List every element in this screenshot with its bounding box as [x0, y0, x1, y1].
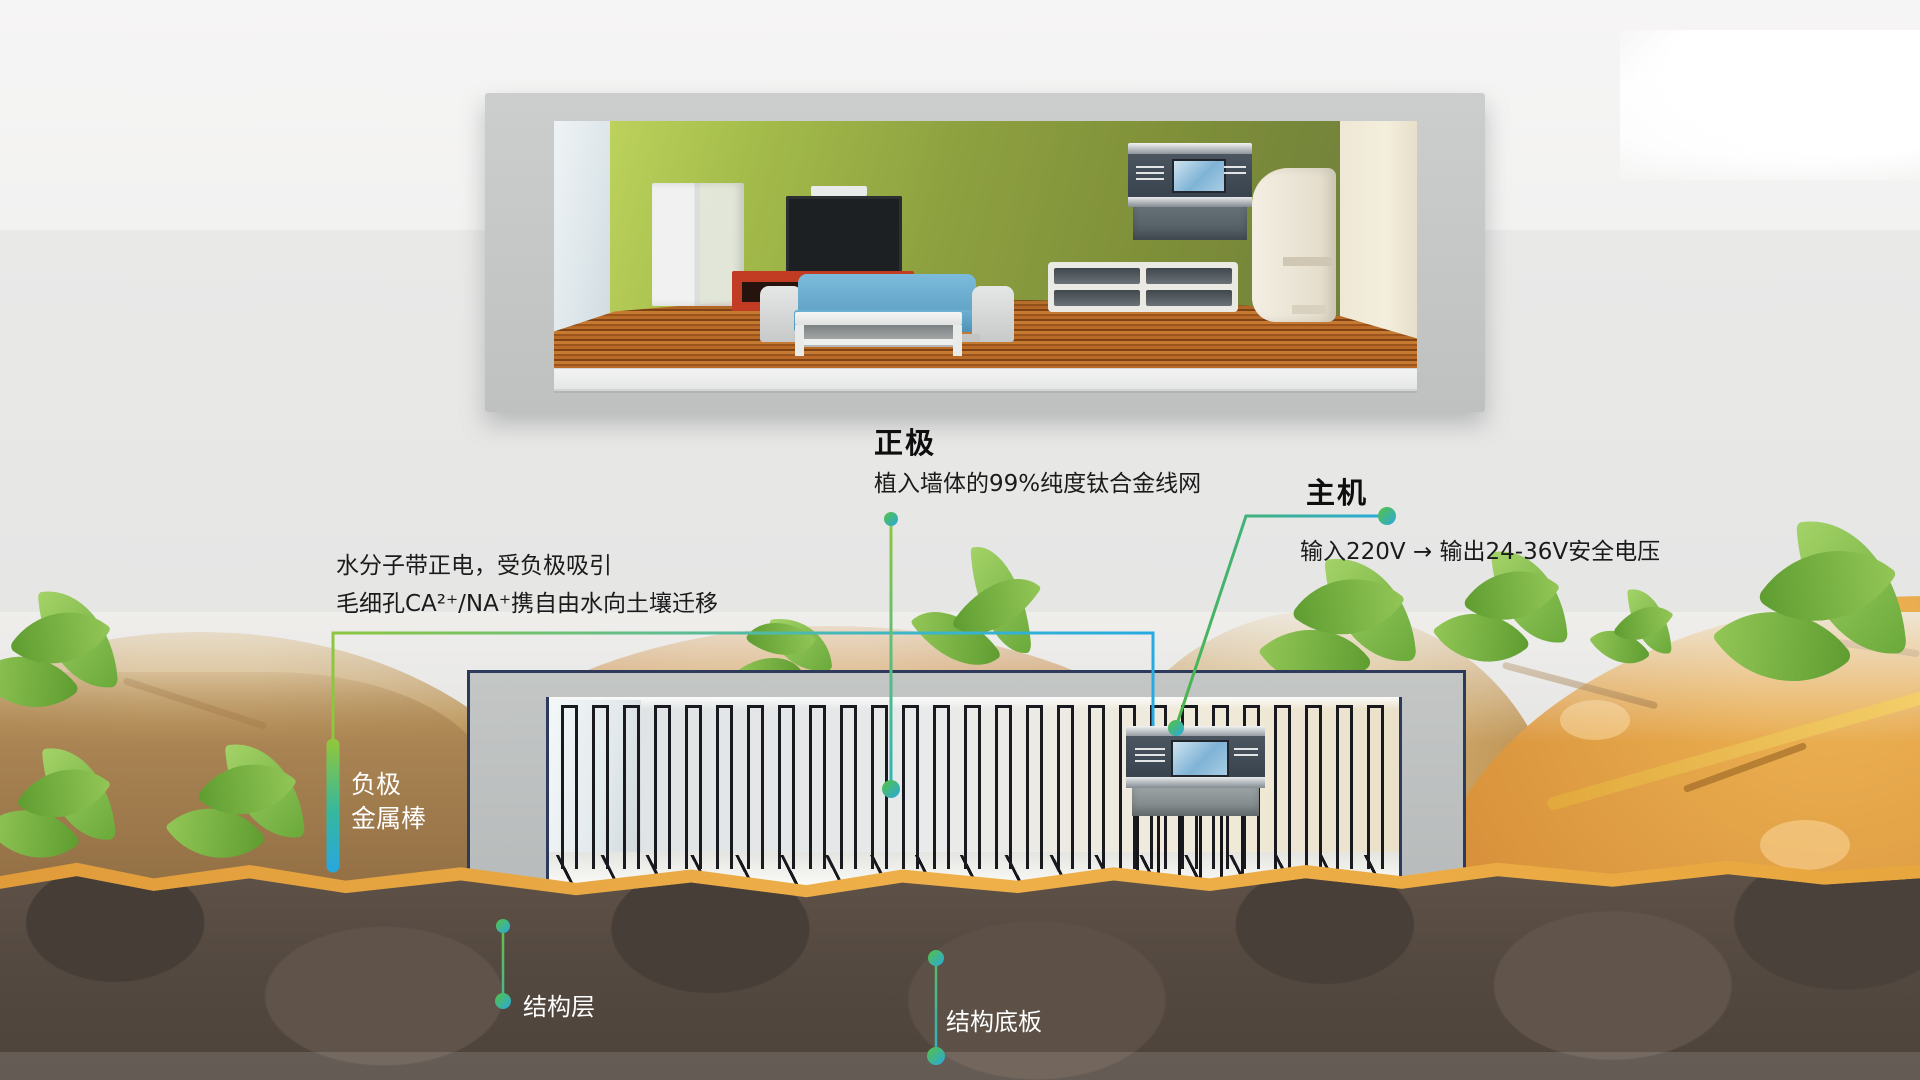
structure-base-dot-bottom [927, 1047, 945, 1065]
positive-electrode-desc: 植入墙体的99%纯度钛合金线网 [874, 464, 1201, 498]
migration-note-line2: 毛细孔CA²⁺/NA⁺携自由水向土壤迁移 [336, 584, 718, 618]
host-title: 主机 [1306, 470, 1368, 512]
positive-electrode-title: 正极 [874, 420, 936, 462]
structure-layer-label: 结构层 [523, 987, 595, 1022]
negative-electrode-line2: 金属棒 [351, 802, 426, 836]
structure-base-label: 结构底板 [946, 1002, 1042, 1037]
host-device-dot [1168, 720, 1184, 736]
host-desc: 输入220V → 输出24-36V安全电压 [1300, 532, 1660, 566]
migration-note-line1: 水分子带正电，受负极吸引 [336, 546, 612, 580]
electro-osmosis-diagram: 正极 植入墙体的99%纯度钛合金线网 主机 输入220V → 输出24-36V安… [0, 0, 1920, 1080]
positive-line-dot-bottom [882, 780, 900, 798]
positive-line-dot-top [884, 512, 898, 526]
structure-layer-dot-top [496, 919, 510, 933]
structure-base-dot-top [928, 950, 944, 966]
negative-electrode-line1: 负极 [351, 768, 426, 802]
host-line-dot [1378, 507, 1396, 525]
negative-electrode-label: 负极 金属棒 [351, 768, 426, 836]
negative-to-host-line [333, 633, 1153, 740]
structure-layer-dot-bottom [495, 993, 511, 1009]
